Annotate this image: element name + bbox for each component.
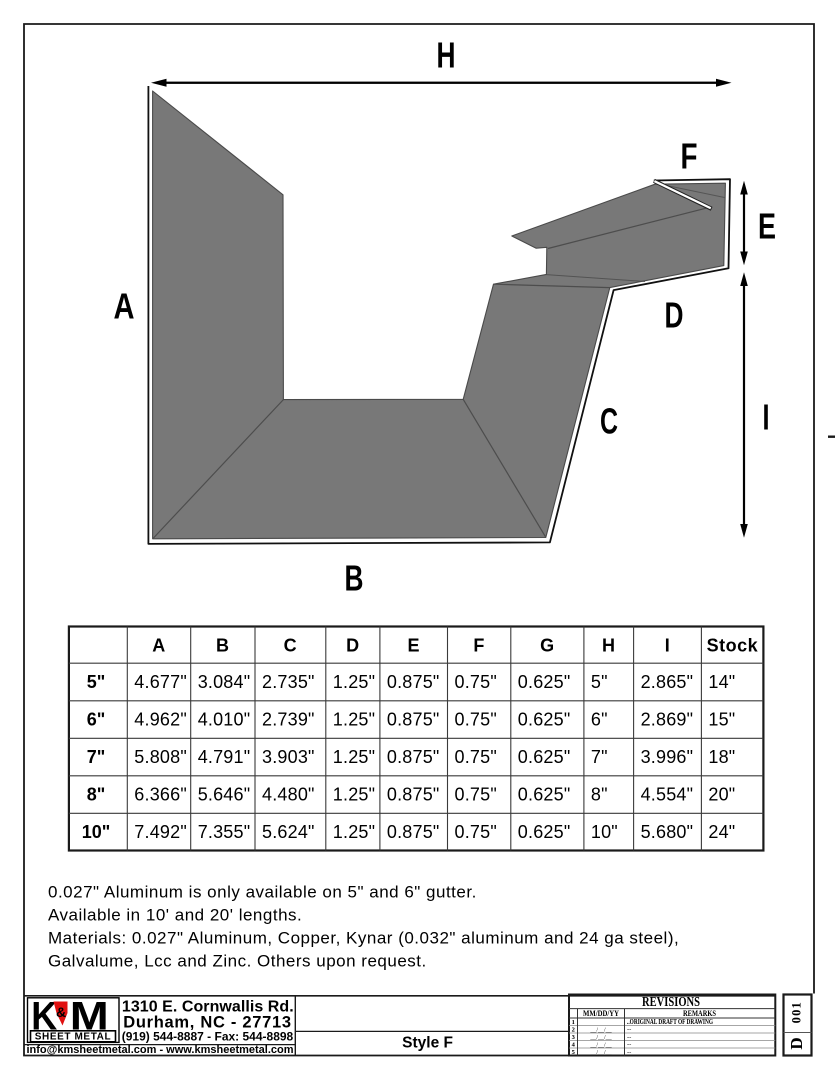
svg-text:--: --: [627, 1034, 631, 1041]
svg-text:H: H: [602, 636, 616, 656]
svg-text:..ORIGINAL DRAFT OF DRAWING: ..ORIGINAL DRAFT OF DRAWING: [627, 1019, 714, 1026]
svg-text:5": 5": [591, 672, 608, 692]
svg-text:001: 001: [789, 1001, 803, 1023]
svg-text:8": 8": [591, 784, 608, 804]
svg-text:4.480": 4.480": [262, 784, 315, 804]
svg-text:6": 6": [87, 710, 106, 730]
svg-text:7.492": 7.492": [134, 822, 187, 842]
svg-text:A: A: [114, 286, 135, 327]
svg-text:3.903": 3.903": [262, 747, 315, 767]
svg-text:Available in 10' and 20' lengt: Available in 10' and 20' lengths.: [48, 906, 302, 925]
svg-text:18": 18": [708, 747, 735, 767]
svg-text:7.355": 7.355": [198, 822, 251, 842]
svg-text:&: &: [56, 1004, 66, 1020]
svg-text:0.875": 0.875": [387, 822, 440, 842]
svg-text:8": 8": [87, 784, 106, 804]
svg-text:14": 14": [708, 672, 735, 692]
svg-text:D: D: [665, 295, 684, 336]
svg-text:0.75": 0.75": [455, 822, 497, 842]
svg-text:E: E: [758, 206, 776, 247]
svg-text:SHEET METAL: SHEET METAL: [35, 1032, 111, 1043]
svg-text:0.875": 0.875": [387, 672, 440, 692]
svg-text:I: I: [665, 636, 671, 656]
svg-text:Style F: Style F: [402, 1034, 453, 1051]
svg-text:--: --: [627, 1049, 631, 1056]
svg-text:Stock: Stock: [707, 636, 759, 656]
svg-text:5.680": 5.680": [641, 822, 694, 842]
svg-text:0.625": 0.625": [518, 672, 571, 692]
svg-text:0.75": 0.75": [455, 747, 497, 767]
svg-text:G: G: [540, 636, 555, 656]
svg-text:24": 24": [708, 822, 735, 842]
svg-text:D: D: [346, 636, 360, 656]
svg-text:REMARKS: REMARKS: [683, 1008, 716, 1018]
svg-text:0.027" Aluminum is only availa: 0.027" Aluminum is only available on 5" …: [48, 883, 477, 902]
svg-text:0.625": 0.625": [518, 822, 571, 842]
svg-text:1.25": 1.25": [333, 784, 375, 804]
svg-text:Galvalume, Lcc and Zinc. Other: Galvalume, Lcc and Zinc. Others upon req…: [48, 952, 427, 971]
svg-text:0.625": 0.625": [518, 784, 571, 804]
svg-text:0.75": 0.75": [455, 672, 497, 692]
svg-text:5.646": 5.646": [198, 784, 251, 804]
svg-text:D: D: [787, 1037, 806, 1049]
svg-text:B: B: [345, 558, 364, 599]
svg-text:Materials: 0.027" Aluminum, Co: Materials: 0.027" Aluminum, Copper, Kyna…: [48, 929, 679, 948]
svg-text:(919) 544-8887 - Fax: 544-8898: (919) 544-8887 - Fax: 544-8898: [122, 1030, 294, 1044]
svg-text:7": 7": [591, 747, 608, 767]
svg-text:0.875": 0.875": [387, 784, 440, 804]
svg-text:F: F: [473, 636, 485, 656]
svg-text:0.875": 0.875": [387, 710, 440, 730]
svg-text:7": 7": [87, 747, 106, 767]
svg-text:__/__/__: __/__/__: [589, 1028, 612, 1034]
svg-text:4.010": 4.010": [198, 710, 251, 730]
svg-text:1.25": 1.25": [333, 672, 375, 692]
svg-text:6": 6": [591, 710, 608, 730]
svg-text:1: 1: [572, 1019, 575, 1026]
svg-text:10": 10": [591, 822, 618, 842]
svg-text:C: C: [600, 401, 618, 442]
svg-text:--: --: [627, 1042, 631, 1049]
svg-text:10": 10": [82, 822, 111, 842]
svg-text:4.962": 4.962": [134, 710, 187, 730]
svg-text:H: H: [437, 35, 456, 76]
svg-text:0.75": 0.75": [455, 784, 497, 804]
svg-text:0.875": 0.875": [387, 747, 440, 767]
svg-text:0.625": 0.625": [518, 747, 571, 767]
svg-text:5": 5": [87, 672, 106, 692]
svg-text:__/__/__: __/__/__: [589, 1050, 612, 1056]
svg-text:3.084": 3.084": [198, 672, 251, 692]
svg-text:20": 20": [708, 784, 735, 804]
svg-text:4.677": 4.677": [134, 672, 187, 692]
svg-text:6.366": 6.366": [134, 784, 187, 804]
svg-text:--: --: [627, 1027, 631, 1034]
svg-text:MM/DD/YY: MM/DD/YY: [583, 1008, 619, 1018]
svg-text:5.808": 5.808": [134, 747, 187, 767]
svg-text:1.25": 1.25": [333, 822, 375, 842]
svg-text:3.996": 3.996": [641, 747, 694, 767]
svg-text:2.735": 2.735": [262, 672, 315, 692]
svg-text:2.869": 2.869": [641, 710, 694, 730]
svg-text:1.25": 1.25": [333, 710, 375, 730]
svg-text:I: I: [763, 397, 770, 438]
svg-text:15": 15": [708, 710, 735, 730]
svg-text:__/__/__: __/__/__: [589, 1043, 612, 1049]
svg-text:__/__/__: __/__/__: [589, 1035, 612, 1041]
svg-text:4.554": 4.554": [641, 784, 694, 804]
svg-text:2.865": 2.865": [641, 672, 694, 692]
svg-text:F: F: [681, 136, 698, 177]
svg-text:4.791": 4.791": [198, 747, 251, 767]
svg-text:2.739": 2.739": [262, 710, 315, 730]
svg-text:A: A: [152, 636, 166, 656]
svg-text:0.75": 0.75": [455, 710, 497, 730]
svg-text:C: C: [284, 636, 298, 656]
svg-text:5.624": 5.624": [262, 822, 315, 842]
svg-text:info@kmsheetmetal.com - www.km: info@kmsheetmetal.com - www.kmsheetmetal…: [26, 1044, 293, 1056]
svg-text:E: E: [407, 636, 420, 656]
svg-text:1.25": 1.25": [333, 747, 375, 767]
svg-text:B: B: [216, 636, 230, 656]
svg-text:2: 2: [572, 1027, 575, 1034]
svg-text:REVISIONS: REVISIONS: [642, 994, 700, 1009]
svg-text:0.625": 0.625": [518, 710, 571, 730]
